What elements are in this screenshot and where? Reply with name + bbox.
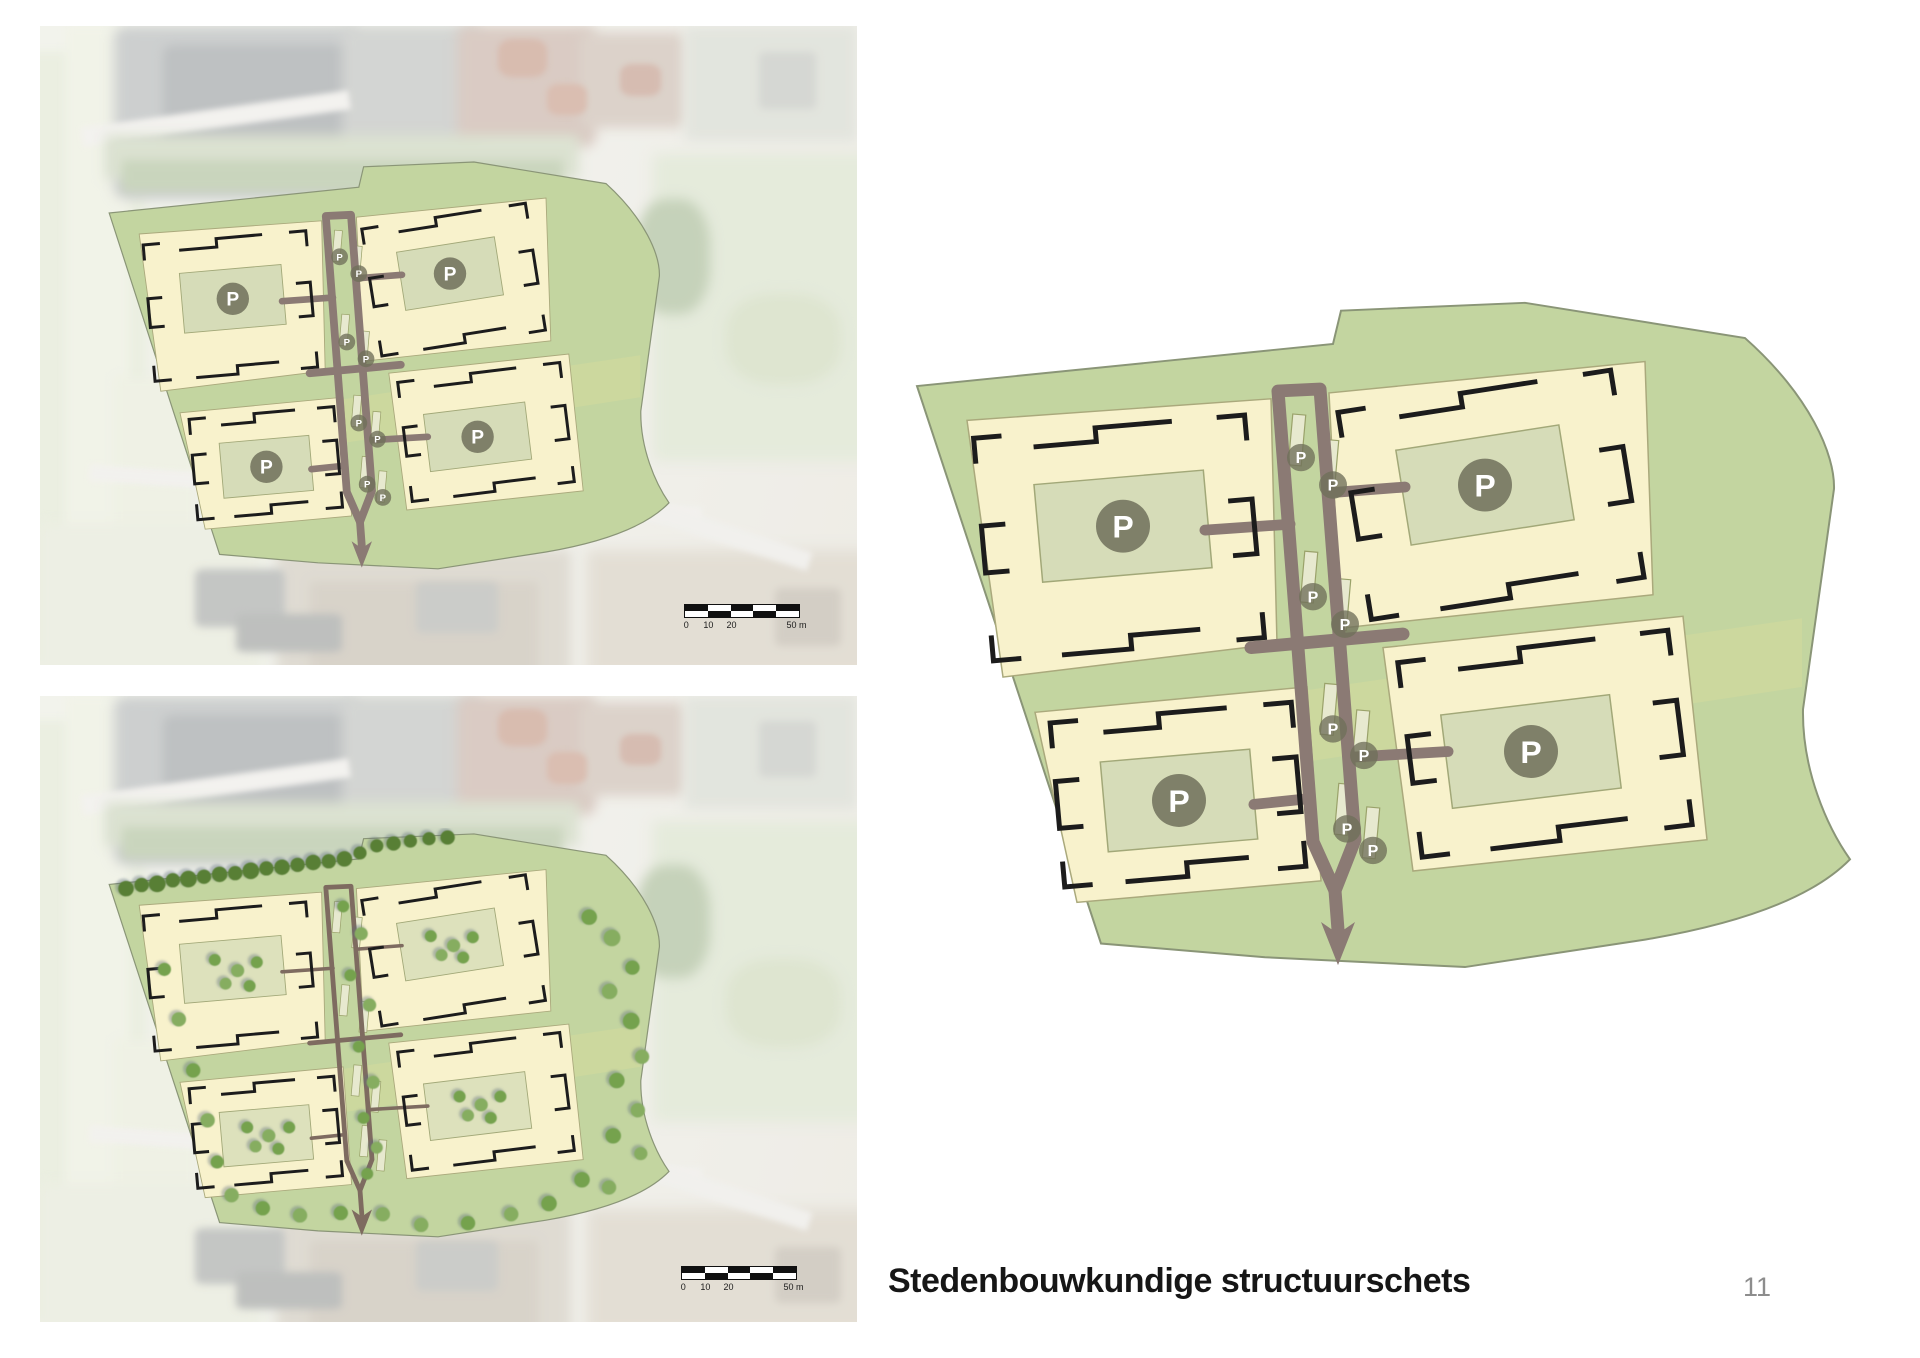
tree xyxy=(363,999,376,1012)
parking-badge: P xyxy=(250,451,282,483)
aerial-texture-blob xyxy=(310,582,539,665)
document-page: PPPPPPPPPPPP 0 10 20 50 m 0 10 xyxy=(0,0,1920,1358)
parking-badge-label: P xyxy=(1112,509,1133,545)
parking-badge-label: P xyxy=(336,252,343,263)
tree xyxy=(344,969,356,981)
parking-badge-label: P xyxy=(444,265,457,286)
aerial-texture-blob xyxy=(498,709,547,747)
site-plan-overlay-trees xyxy=(102,828,672,1238)
tree xyxy=(581,909,597,924)
aerial-texture-blob xyxy=(236,614,342,652)
tree xyxy=(353,1041,365,1053)
tree xyxy=(172,1012,186,1026)
tree xyxy=(604,930,621,947)
tree xyxy=(158,963,171,976)
scale-tick: 0 xyxy=(681,1282,686,1292)
aerial-texture-blob xyxy=(310,1241,539,1322)
parking-badge-label: P xyxy=(1328,478,1339,495)
map-aerial-plan: PPPPPPPPPPPP 0 10 20 50 m xyxy=(40,26,857,665)
parking-badge: P xyxy=(1152,774,1206,827)
tree xyxy=(457,952,469,964)
tree xyxy=(485,1112,497,1124)
tree xyxy=(376,1207,390,1221)
parking-badge-label: P xyxy=(364,480,371,491)
tree xyxy=(149,876,166,893)
aerial-texture-blob xyxy=(81,90,351,146)
tree xyxy=(322,854,336,868)
tree xyxy=(290,858,304,872)
aerial-texture-blob xyxy=(685,26,857,141)
tree xyxy=(242,862,259,879)
aerial-texture-blob xyxy=(620,734,661,765)
parking-badge-label: P xyxy=(1520,734,1541,770)
aerial-texture-blob xyxy=(416,1241,498,1291)
tree xyxy=(262,1129,275,1142)
parking-badge-label: P xyxy=(260,458,273,479)
tree xyxy=(494,1091,506,1103)
aerial-texture-blob xyxy=(685,696,857,809)
tree xyxy=(467,931,479,943)
tree xyxy=(367,1076,380,1089)
aerial-texture-blob xyxy=(163,45,359,173)
page-number: 11 xyxy=(1743,1272,1771,1303)
parking-badge-small: P xyxy=(358,350,375,367)
tree xyxy=(447,939,460,952)
parking-badge-label: P xyxy=(1342,822,1353,839)
parking-badge-label: P xyxy=(1474,468,1495,504)
plan-drawing: PPPPPPPPPPPP xyxy=(905,293,1855,969)
tree xyxy=(283,1122,295,1134)
tree xyxy=(337,851,353,866)
scale-bar-labels: 0 10 20 50 m xyxy=(684,620,800,632)
parking-badge-small: P xyxy=(359,476,376,493)
tree xyxy=(186,1063,200,1077)
tree xyxy=(180,871,197,888)
plan-drawing xyxy=(102,828,672,1238)
aerial-texture-blob xyxy=(457,696,596,815)
parking-badge-label: P xyxy=(344,337,351,348)
tree xyxy=(541,1196,557,1211)
parking-badge-label: P xyxy=(356,269,363,280)
scale-tick: 10 xyxy=(703,620,713,630)
parking-badge-label: P xyxy=(380,493,387,504)
aerial-texture-blob xyxy=(547,84,588,116)
parking-badge-small: P xyxy=(1299,583,1327,610)
tree xyxy=(353,846,366,859)
scale-bar: 0 10 20 50 m xyxy=(681,1266,797,1294)
parking-badge-small: P xyxy=(1319,471,1347,498)
parking-badge-small: P xyxy=(1331,610,1359,637)
parking-badge-label: P xyxy=(1296,450,1307,467)
plan-drawing: PPPPPPPPPPPP xyxy=(102,156,672,570)
tree xyxy=(602,1180,616,1194)
tree xyxy=(220,978,232,990)
tree xyxy=(305,855,321,870)
aerial-texture-blob xyxy=(195,569,285,627)
tree xyxy=(414,1218,428,1232)
parking-badge-small: P xyxy=(338,334,355,351)
scale-tick: 0 xyxy=(684,620,689,630)
tree xyxy=(436,949,448,961)
parking-badge-label: P xyxy=(226,290,239,311)
tree xyxy=(386,836,400,850)
tree xyxy=(272,1143,284,1155)
tree xyxy=(371,1142,383,1154)
tree xyxy=(634,1147,647,1160)
parking-badge-small: P xyxy=(1350,742,1378,769)
map-aerial-plan-landscaped: 0 10 20 50 m xyxy=(40,696,857,1322)
parking-badge: P xyxy=(1504,725,1558,778)
aerial-texture-blob xyxy=(236,1272,342,1310)
parking-badge: P xyxy=(461,421,493,453)
tree xyxy=(200,1113,214,1127)
aerial-texture-blob xyxy=(498,39,547,77)
parking-badge: P xyxy=(1096,500,1150,553)
tree xyxy=(293,1208,307,1222)
tree xyxy=(228,866,242,880)
tree xyxy=(504,1207,518,1221)
parking-badge-label: P xyxy=(356,418,363,429)
aerial-texture-blob xyxy=(759,721,816,777)
aerial-texture-blob xyxy=(579,702,685,796)
tree xyxy=(361,1168,373,1180)
parking-badge-small: P xyxy=(1319,715,1347,742)
scale-tick: 10 xyxy=(700,1282,710,1292)
tree xyxy=(422,832,435,845)
tree xyxy=(166,873,180,887)
tree xyxy=(370,839,383,852)
tree xyxy=(209,954,221,966)
aerial-texture-blob xyxy=(81,759,351,815)
scale-tick: 50 m xyxy=(787,620,807,630)
scale-bar-labels: 0 10 20 50 m xyxy=(681,1282,797,1294)
tree xyxy=(274,859,290,874)
tree xyxy=(602,984,618,999)
scale-bar-checker xyxy=(681,1266,797,1280)
tree xyxy=(358,1112,370,1124)
tree xyxy=(259,861,273,875)
tree xyxy=(625,961,639,975)
scale-tick: 20 xyxy=(724,1282,734,1292)
aerial-texture-blob xyxy=(653,821,857,1121)
tree xyxy=(475,1098,488,1111)
tree xyxy=(635,1050,649,1064)
tree xyxy=(605,1128,621,1143)
parking-badge-label: P xyxy=(1340,617,1351,634)
parking-badge-label: P xyxy=(471,428,484,449)
aerial-texture-blob xyxy=(726,959,840,1047)
tree xyxy=(211,1155,224,1168)
parking-badge-label: P xyxy=(1328,722,1339,739)
tree xyxy=(355,927,368,940)
page-title: Stedenbouwkundige structuurschets xyxy=(888,1262,1470,1301)
tree xyxy=(609,1073,625,1088)
aerial-texture-blob xyxy=(342,696,481,846)
tree xyxy=(244,980,256,992)
parking-badge-label: P xyxy=(374,435,381,446)
tree xyxy=(334,1206,348,1220)
tree xyxy=(118,881,134,896)
parking-badge-small: P xyxy=(331,248,348,265)
parking-badge-label: P xyxy=(1168,783,1189,819)
parking-badge: P xyxy=(434,257,466,289)
parking-badge-small: P xyxy=(369,431,386,448)
parking-badge: P xyxy=(1458,459,1512,512)
tree xyxy=(631,1103,645,1117)
parking-badge-small: P xyxy=(350,265,367,282)
tree xyxy=(425,930,437,942)
aerial-texture-blob xyxy=(547,752,588,783)
aerial-texture-blob xyxy=(759,52,816,110)
tree xyxy=(454,1091,466,1103)
tree xyxy=(251,956,263,968)
parking-badge-label: P xyxy=(1359,748,1370,765)
aerial-texture-blob xyxy=(653,154,857,461)
scale-tick: 20 xyxy=(727,620,737,630)
structure-sketch: PPPPPPPPPPPP xyxy=(905,293,1855,969)
tree xyxy=(231,964,244,977)
tree xyxy=(250,1141,262,1153)
aerial-texture-blob xyxy=(726,294,840,383)
tree xyxy=(404,835,417,848)
aerial-texture-blob xyxy=(579,32,685,128)
tree xyxy=(241,1122,253,1134)
parking-badge-label: P xyxy=(1368,843,1379,860)
tree xyxy=(574,1172,590,1187)
parking-badge-small: P xyxy=(1287,444,1315,471)
scale-bar: 0 10 20 50 m xyxy=(684,604,800,632)
parking-badge-small: P xyxy=(1333,815,1361,842)
parking-badge: P xyxy=(217,283,249,315)
tree xyxy=(337,900,349,912)
tree xyxy=(256,1201,270,1215)
parking-badge-small: P xyxy=(350,415,367,432)
tree xyxy=(461,1216,475,1230)
tree xyxy=(224,1188,238,1202)
parking-badge-small: P xyxy=(374,489,391,506)
tree xyxy=(440,830,454,844)
tree xyxy=(212,867,228,882)
aerial-texture-blob xyxy=(163,715,359,840)
tree xyxy=(462,1110,474,1122)
scale-tick: 50 m xyxy=(784,1282,804,1292)
aerial-texture-blob xyxy=(457,26,596,147)
site-plan-overlay: PPPPPPPPPPPP xyxy=(102,156,672,570)
scale-bar-checker xyxy=(684,604,800,618)
aerial-texture-blob xyxy=(416,582,498,633)
tree xyxy=(197,870,211,884)
tree xyxy=(623,1013,640,1030)
parking-badge-small: P xyxy=(1359,837,1387,864)
parking-badge-label: P xyxy=(1308,589,1319,606)
tree xyxy=(134,878,148,892)
parking-badge-label: P xyxy=(363,354,370,365)
aerial-texture-blob xyxy=(620,64,661,96)
